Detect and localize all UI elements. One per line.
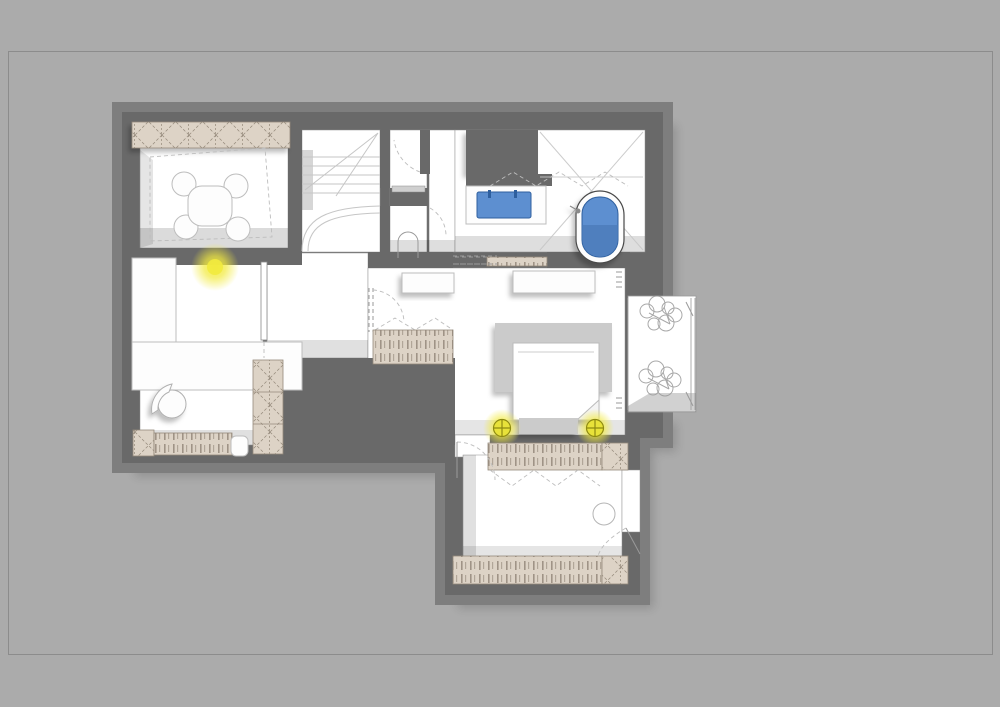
headboard [519, 418, 578, 434]
floor-plan-canvas [0, 0, 1000, 707]
cabinet-hatched [602, 556, 628, 584]
dresser [513, 271, 595, 293]
cabinet-hatched [602, 443, 628, 470]
mattress [513, 343, 599, 420]
terrace [628, 296, 696, 412]
drawing-sheet [0, 0, 1000, 707]
wardrobe-hatched [253, 360, 283, 454]
dressing-door-gap [622, 470, 640, 532]
wardrobe-hatched [132, 122, 290, 148]
dresser [402, 273, 454, 293]
side-table-hatched [133, 430, 154, 456]
radiator-hatched [488, 443, 602, 470]
threshold-strip [487, 257, 547, 266]
dining-table [188, 186, 232, 226]
bedside-lamp [576, 409, 614, 447]
pouf [231, 436, 248, 456]
sliding-door [261, 262, 267, 340]
wardrobe-hatched [453, 556, 602, 584]
wardrobe-hatched [373, 330, 453, 364]
sofa [154, 433, 232, 455]
bedside-lamp [483, 409, 521, 447]
washbasin-blue [477, 192, 531, 218]
